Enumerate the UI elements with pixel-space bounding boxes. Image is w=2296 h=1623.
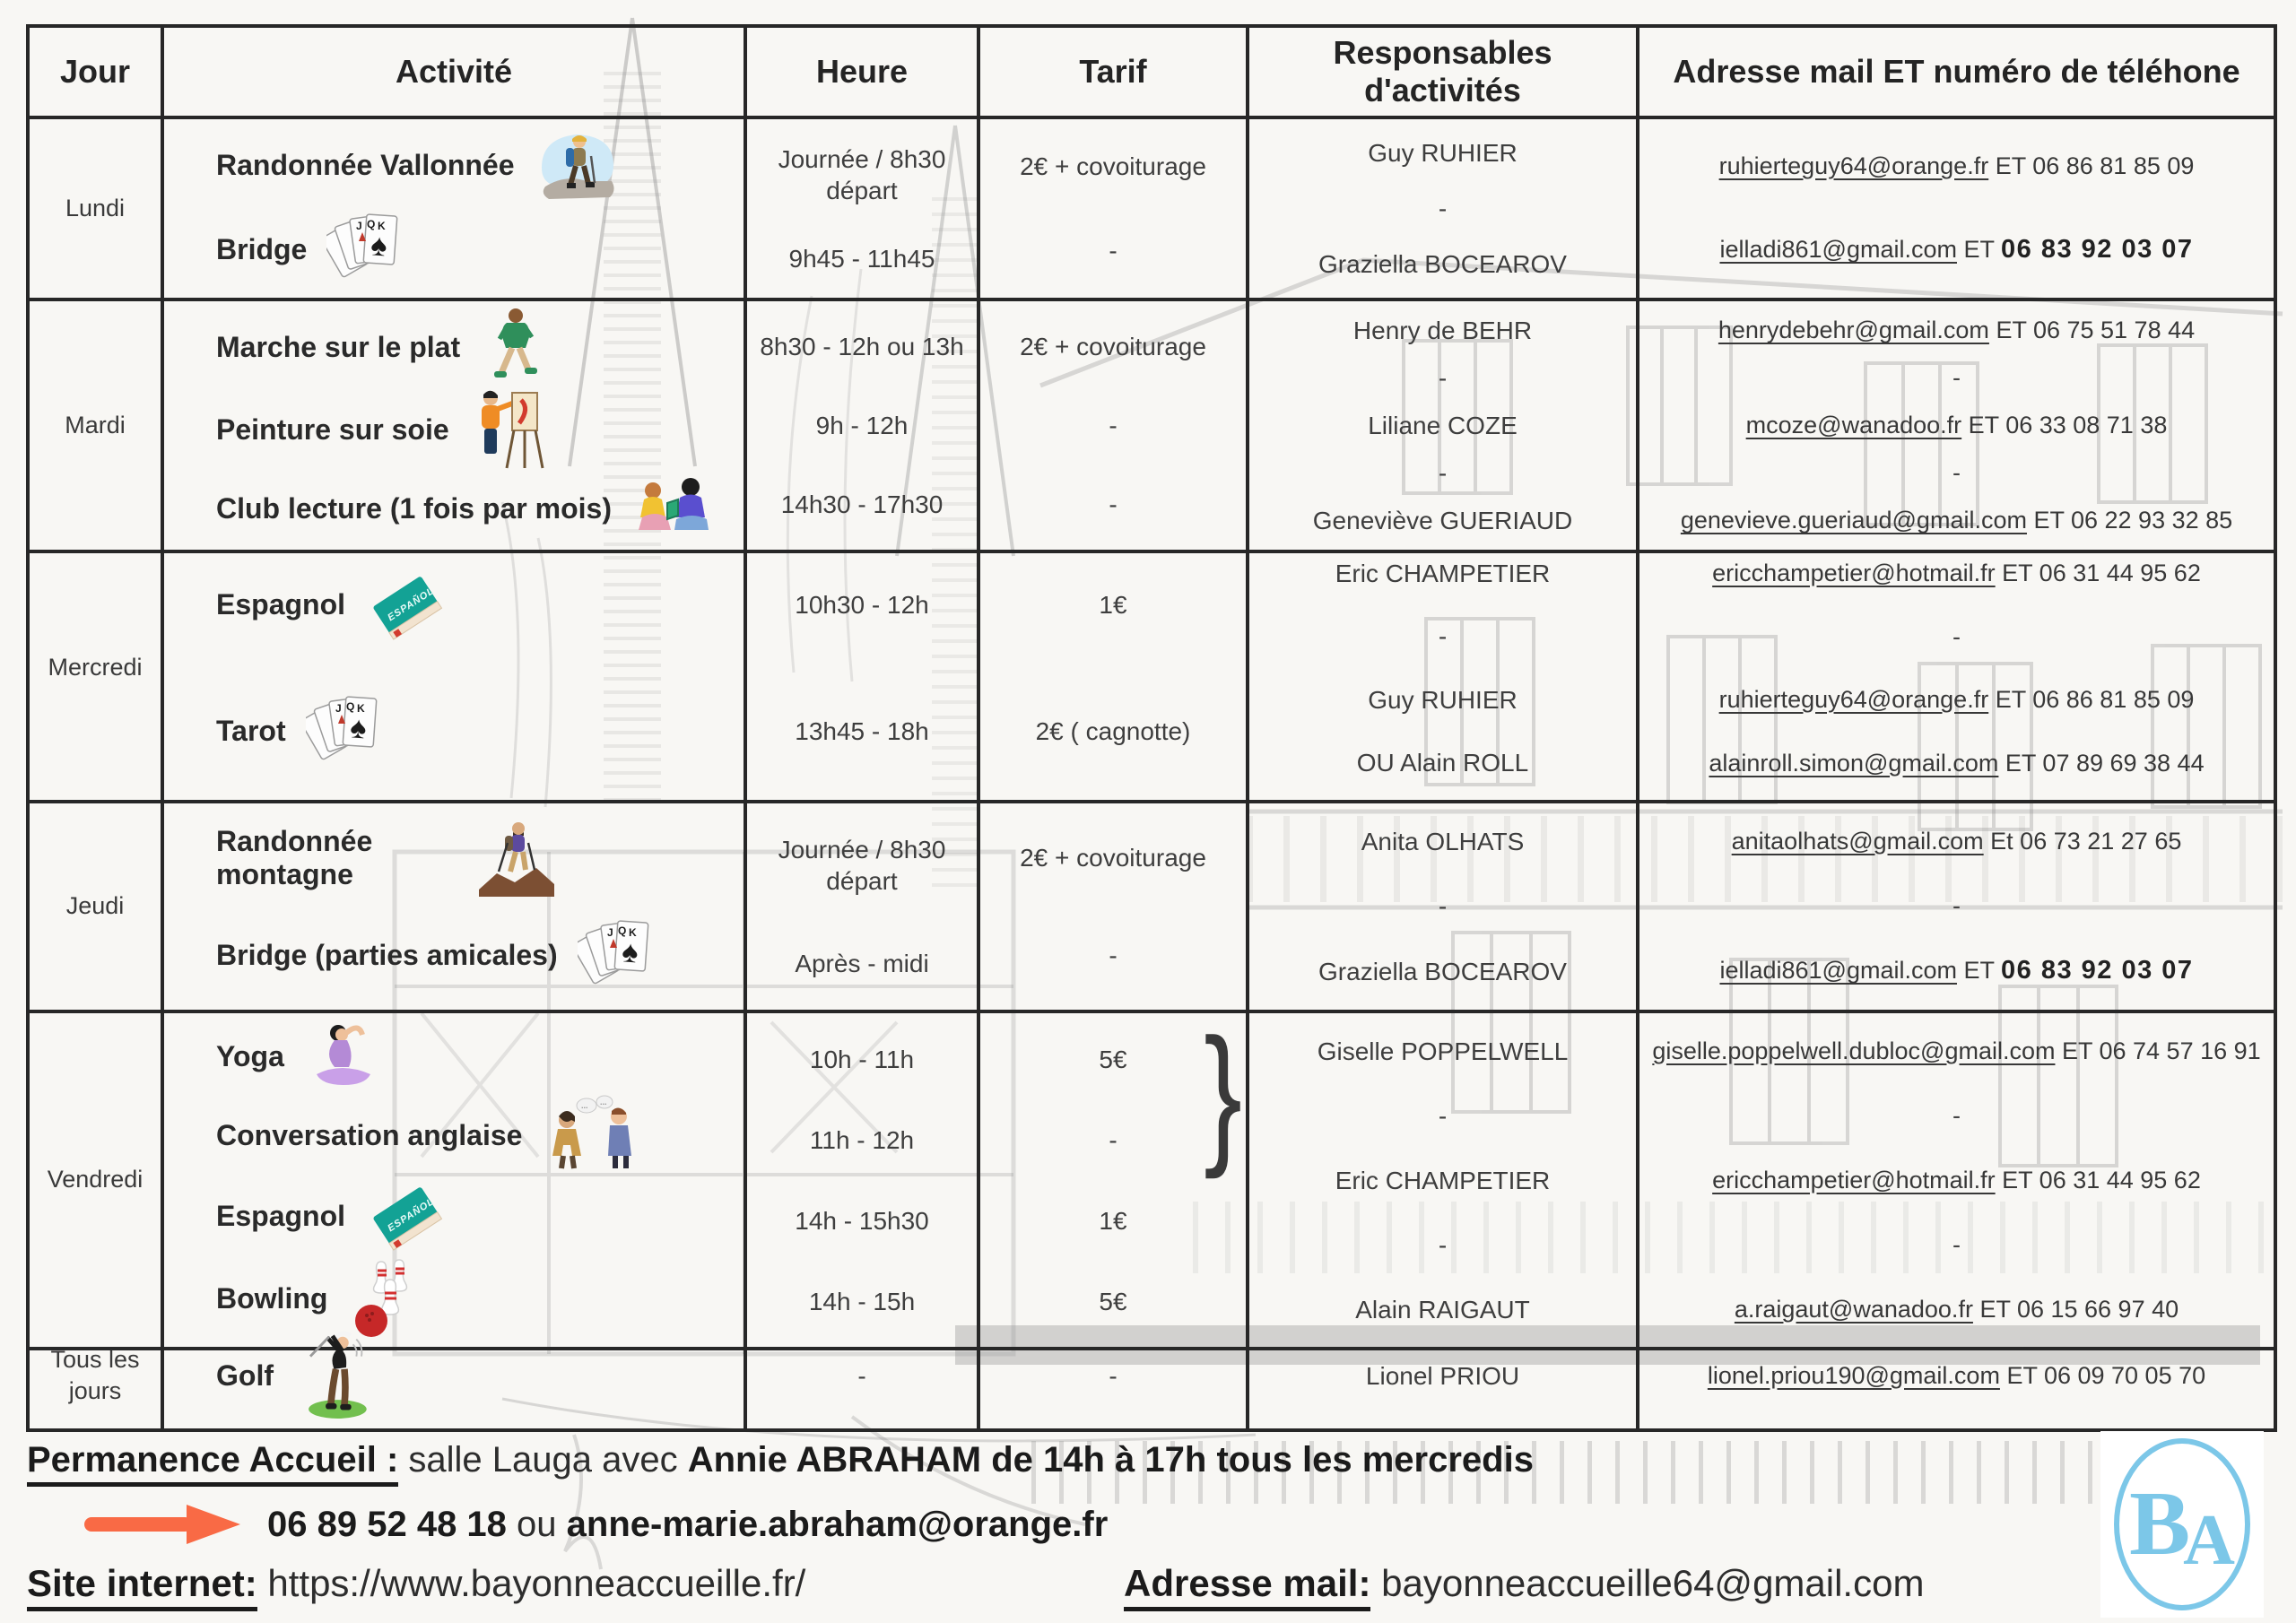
svg-text:...: ...	[600, 1098, 607, 1107]
table-header-row: Jour Activité Heure Tarif Responsables d…	[30, 28, 2274, 119]
heure-cell: 8h30 - 12h ou 13h 9h - 12h 14h30 - 17h30	[747, 301, 980, 553]
responsables-cell: Giselle POPPELWELL - Eric CHAMPETIER - A…	[1249, 1013, 1639, 1350]
day-cell: Mardi	[30, 301, 164, 553]
svg-text:...: ...	[581, 1101, 588, 1110]
permanence-contact-line: 06 89 52 48 18 ou anne-marie.abraham@ora…	[83, 1501, 1108, 1548]
email-link[interactable]: ielladi861@gmail.com	[1719, 957, 1957, 984]
activity-line: Tarot ♠KQJ	[216, 691, 396, 772]
activities-cell: Yoga Conversation anglaise ...... Espagn…	[164, 1013, 747, 1350]
header-adresse: Adresse mail ET numéro de téléhone	[1639, 28, 2274, 119]
tarif-cell: 2€ + covoiturage - -	[980, 301, 1249, 553]
email-link[interactable]: alainroll.simon@gmail.com	[1709, 750, 1998, 777]
ba-logo-ellipse: BA	[2114, 1438, 2250, 1610]
email-link[interactable]: mcoze@wanadoo.fr	[1746, 412, 1962, 438]
contact-separator: -	[1952, 1101, 1961, 1130]
tarif-cell: -	[980, 1323, 1249, 1428]
email-link[interactable]: ericchampetier@hotmail.fr	[1712, 560, 1996, 586]
day-cell: Vendredi	[30, 1013, 164, 1350]
activities-cell: Randonnée Vallonnée Bridge ♠KQJ	[164, 119, 747, 301]
contact-line: anitaolhats@gmail.com Et 06 73 21 27 65	[1732, 827, 2182, 855]
spanish-book-icon: ESPAÑOL	[365, 565, 455, 646]
contact-cell: lionel.priou190@gmail.com ET 06 09 70 05…	[1639, 1323, 2274, 1428]
right-arrow-icon	[83, 1501, 244, 1548]
activity-line: Espagnol ESPAÑOL	[216, 1176, 455, 1256]
responsables-cell: Anita OLHATS - Graziella BOCEAROV	[1249, 803, 1639, 1013]
permanence-email[interactable]: anne-marie.abraham@orange.fr	[567, 1505, 1109, 1544]
contact-separator: -	[1952, 891, 1961, 920]
activity-line: Peinture sur soie	[216, 387, 554, 473]
hiker-icon	[535, 127, 620, 204]
contact-line: ericchampetier@hotmail.fr ET 06 31 44 95…	[1712, 1166, 2201, 1194]
walker-icon	[480, 307, 547, 387]
table-row-vendredi: Vendredi Yoga Conversation anglaise ....…	[30, 1013, 2274, 1323]
table-row-lundi: Lundi Randonnée Vallonnée Bridge ♠KQJ Jo…	[30, 119, 2274, 301]
activities-cell: Marche sur le plat Peinture sur soie Clu…	[164, 301, 747, 553]
contact-line: ericchampetier@hotmail.fr ET 06 31 44 95…	[1712, 559, 2201, 587]
painter-icon	[469, 387, 554, 473]
svg-text:K: K	[378, 220, 386, 232]
site-label: Site internet:	[27, 1562, 257, 1611]
contact-separator: -	[1952, 363, 1961, 392]
header-heure: Heure	[747, 28, 980, 119]
contact-email[interactable]: bayonneaccueille64@gmail.com	[1370, 1562, 1924, 1604]
permanence-line: Permanence Accueil : salle Lauga avec An…	[27, 1440, 1534, 1480]
contact-line: genevieve.gueriaud@gmail.com ET 06 22 93…	[1681, 506, 2232, 534]
activities-cell: Espagnol ESPAÑOL Tarot ♠KQJ	[164, 536, 747, 803]
activity-line: Marche sur le plat	[216, 307, 547, 387]
contact-line: ielladi861@gmail.com ET 06 83 92 03 07	[1719, 234, 2193, 265]
site-url[interactable]: https://www.bayonneaccueille.fr/	[257, 1562, 806, 1604]
heure-cell: Journée / 8h30 départ 9h45 - 11h45	[747, 119, 980, 301]
permanence-label: Permanence Accueil :	[27, 1440, 398, 1487]
brace-decoration: }	[1204, 1017, 1242, 1172]
activity-line: Randonnée montagne	[216, 818, 559, 898]
table-row-mercredi: Mercredi Espagnol ESPAÑOL Tarot ♠KQJ 10h…	[30, 536, 2274, 803]
contact-cell: ruhierteguy64@orange.fr ET 06 86 81 85 0…	[1639, 119, 2274, 301]
contact-line: mcoze@wanadoo.fr ET 06 33 08 71 38	[1746, 411, 2168, 439]
svg-text:J: J	[356, 220, 362, 232]
svg-text:J: J	[607, 926, 613, 939]
heure-cell: Journée / 8h30 départ Après - midi	[747, 803, 980, 1013]
activity-line: Espagnol ESPAÑOL	[216, 565, 455, 646]
conversation-icon: ......	[542, 1095, 645, 1176]
contact-cell: ericchampetier@hotmail.fr ET 06 31 44 95…	[1639, 536, 2274, 803]
activity-line: Randonnée Vallonnée	[216, 127, 620, 204]
activities-table: Jour Activité Heure Tarif Responsables d…	[26, 24, 2277, 1432]
svg-text:J: J	[335, 702, 342, 715]
day-cell: Mercredi	[30, 536, 164, 803]
email-link[interactable]: giselle.poppelwell.dubloc@gmail.com	[1652, 1037, 2055, 1064]
responsables-cell: Henry de BEHR - Liliane COZE - Geneviève…	[1249, 301, 1639, 553]
header-jour: Jour	[30, 28, 164, 119]
tarif-cell: 2€ + covoiturage -	[980, 119, 1249, 301]
svg-text:♠: ♠	[349, 710, 368, 745]
email-link[interactable]: lionel.priou190@gmail.com	[1708, 1362, 2000, 1389]
email-link[interactable]: ericchampetier@hotmail.fr	[1712, 1167, 1996, 1193]
contact-line: ruhierteguy64@orange.fr ET 06 86 81 85 0…	[1719, 685, 2195, 714]
activities-cell: Randonnée montagne Bridge (parties amica…	[164, 803, 747, 1013]
email-link[interactable]: henrydebehr@gmail.com	[1718, 317, 1989, 343]
contact-separator: -	[1952, 1230, 1961, 1259]
contact-cell: henrydebehr@gmail.com ET 06 75 51 78 44 …	[1639, 301, 2274, 553]
email-link[interactable]: ruhierteguy64@orange.fr	[1719, 152, 1989, 179]
table-row-jeudi: Jeudi Randonnée montagne Bridge (parties…	[30, 803, 2274, 1013]
yoga-icon	[304, 1019, 385, 1095]
activity-line: Golf	[216, 1331, 378, 1420]
mail-label: Adresse mail:	[1124, 1562, 1370, 1611]
contact-line: henrydebehr@gmail.com ET 06 75 51 78 44	[1718, 316, 2195, 344]
readers-icon	[631, 473, 721, 544]
mountain-hiker-icon	[474, 818, 559, 898]
day-cell: Tous les jours	[30, 1323, 164, 1428]
responsables-cell: Lionel PRIOU	[1249, 1323, 1639, 1428]
header-responsables: Responsables d'activités	[1249, 28, 1639, 119]
activities-cell: Golf	[164, 1323, 747, 1428]
contact-line: alainroll.simon@gmail.com ET 07 89 69 38…	[1709, 749, 2204, 777]
contact-cell: anitaolhats@gmail.com Et 06 73 21 27 65 …	[1639, 803, 2274, 1013]
day-cell: Jeudi	[30, 803, 164, 1013]
spanish-book-icon: ESPAÑOL	[365, 1176, 455, 1256]
svg-text:K: K	[629, 926, 637, 939]
svg-text:Q: Q	[367, 218, 375, 230]
header-activite: Activité	[164, 28, 747, 119]
activity-line: Yoga	[216, 1019, 385, 1095]
email-link[interactable]: a.raigaut@wanadoo.fr	[1735, 1296, 1973, 1323]
tarif-cell: } 5€ - 1€ 5€	[980, 1013, 1249, 1350]
playing-cards-icon: ♠KQJ	[578, 916, 667, 996]
contact-separator: -	[1952, 458, 1961, 487]
svg-text:♠: ♠	[370, 228, 389, 263]
contact-line: ielladi861@gmail.com ET 06 83 92 03 07	[1719, 955, 2193, 986]
playing-cards-icon: ♠KQJ	[326, 209, 416, 290]
email-link[interactable]: genevieve.gueriaud@gmail.com	[1681, 507, 2027, 534]
responsables-cell: Guy RUHIER - Graziella BOCEAROV	[1249, 119, 1639, 301]
header-tarif: Tarif	[980, 28, 1249, 119]
svg-text:♠: ♠	[621, 934, 639, 969]
contact-line: giselle.poppelwell.dubloc@gmail.com ET 0…	[1652, 1037, 2260, 1065]
golfer-icon	[293, 1331, 378, 1420]
svg-text:Q: Q	[618, 924, 626, 937]
email-link[interactable]: ruhierteguy64@orange.fr	[1719, 686, 1989, 713]
playing-cards-icon: ♠KQJ	[306, 691, 396, 772]
site-line: Site internet: https://www.bayonneaccuei…	[27, 1562, 805, 1605]
heure-cell: 10h - 11h 11h - 12h 14h - 15h30 14h - 15…	[747, 1013, 980, 1350]
activity-line: Club lecture (1 fois par mois)	[216, 473, 721, 544]
heure-cell: -	[747, 1323, 980, 1428]
mail-line: Adresse mail: bayonneaccueille64@gmail.c…	[1124, 1562, 1924, 1605]
heure-cell: 10h30 - 12h 13h45 - 18h	[747, 536, 980, 803]
activity-line: Bridge ♠KQJ	[216, 209, 416, 290]
contact-line: lionel.priou190@gmail.com ET 06 09 70 05…	[1708, 1361, 2205, 1390]
contact-line: ruhierteguy64@orange.fr ET 06 86 81 85 0…	[1719, 152, 2195, 180]
svg-text:Q: Q	[346, 700, 354, 713]
contact-separator: -	[1952, 622, 1961, 651]
activity-line: Conversation anglaise ......	[216, 1095, 645, 1176]
activity-line: Bridge (parties amicales) ♠KQJ	[216, 916, 667, 996]
contact-cell: giselle.poppelwell.dubloc@gmail.com ET 0…	[1639, 1013, 2274, 1350]
table-row-mardi: Mardi Marche sur le plat Peinture sur so…	[30, 301, 2274, 536]
tarif-cell: 1€ 2€ ( cagnotte)	[980, 536, 1249, 803]
svg-text:K: K	[357, 702, 365, 715]
email-link[interactable]: ielladi861@gmail.com	[1719, 236, 1957, 263]
table-row-tous-les-jours: Tous les jours Golf - - Lionel PRIOU lio…	[30, 1323, 2274, 1428]
day-cell: Lundi	[30, 119, 164, 301]
contact-line: a.raigaut@wanadoo.fr ET 06 15 66 97 40	[1735, 1295, 2179, 1324]
responsables-cell: Eric CHAMPETIER - Guy RUHIER OU Alain RO…	[1249, 536, 1639, 803]
ba-logo: BA	[2100, 1431, 2264, 1618]
tarif-cell: 2€ + covoiturage -	[980, 803, 1249, 1013]
email-link[interactable]: anitaolhats@gmail.com	[1732, 828, 1984, 855]
